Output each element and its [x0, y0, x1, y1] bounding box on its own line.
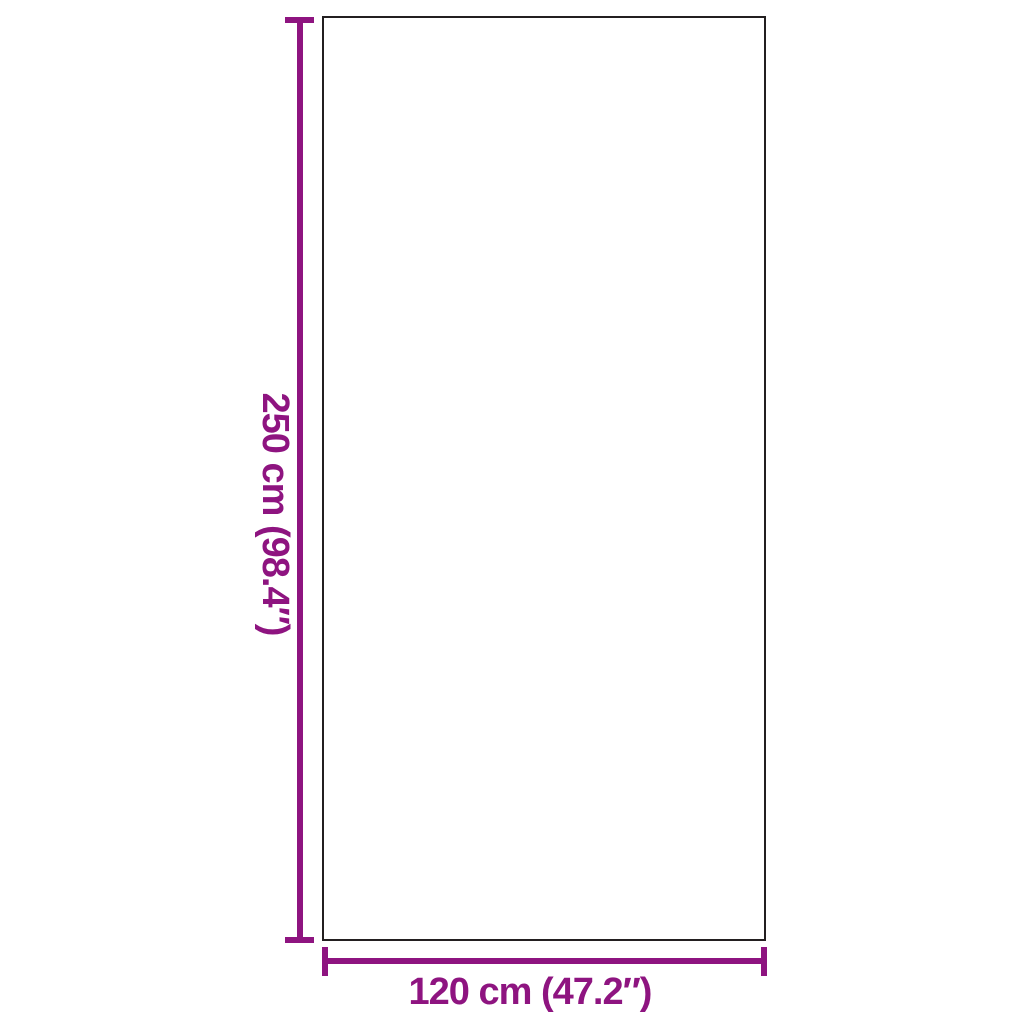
product-outline-rectangle [322, 16, 766, 941]
height-dimension-label: 250 cm (98.4″) [256, 393, 294, 636]
height-dimension-bottom-cap [285, 937, 314, 943]
width-dimension-right-cap [761, 947, 767, 976]
height-dimension-top-cap [285, 17, 314, 23]
width-dimension-line [323, 958, 766, 964]
width-dimension-label: 120 cm (47.2″) [409, 973, 652, 1011]
dimension-diagram: 250 cm (98.4″) 120 cm (47.2″) [0, 0, 1024, 1024]
width-dimension-left-cap [322, 947, 328, 976]
height-dimension-line [297, 18, 303, 940]
